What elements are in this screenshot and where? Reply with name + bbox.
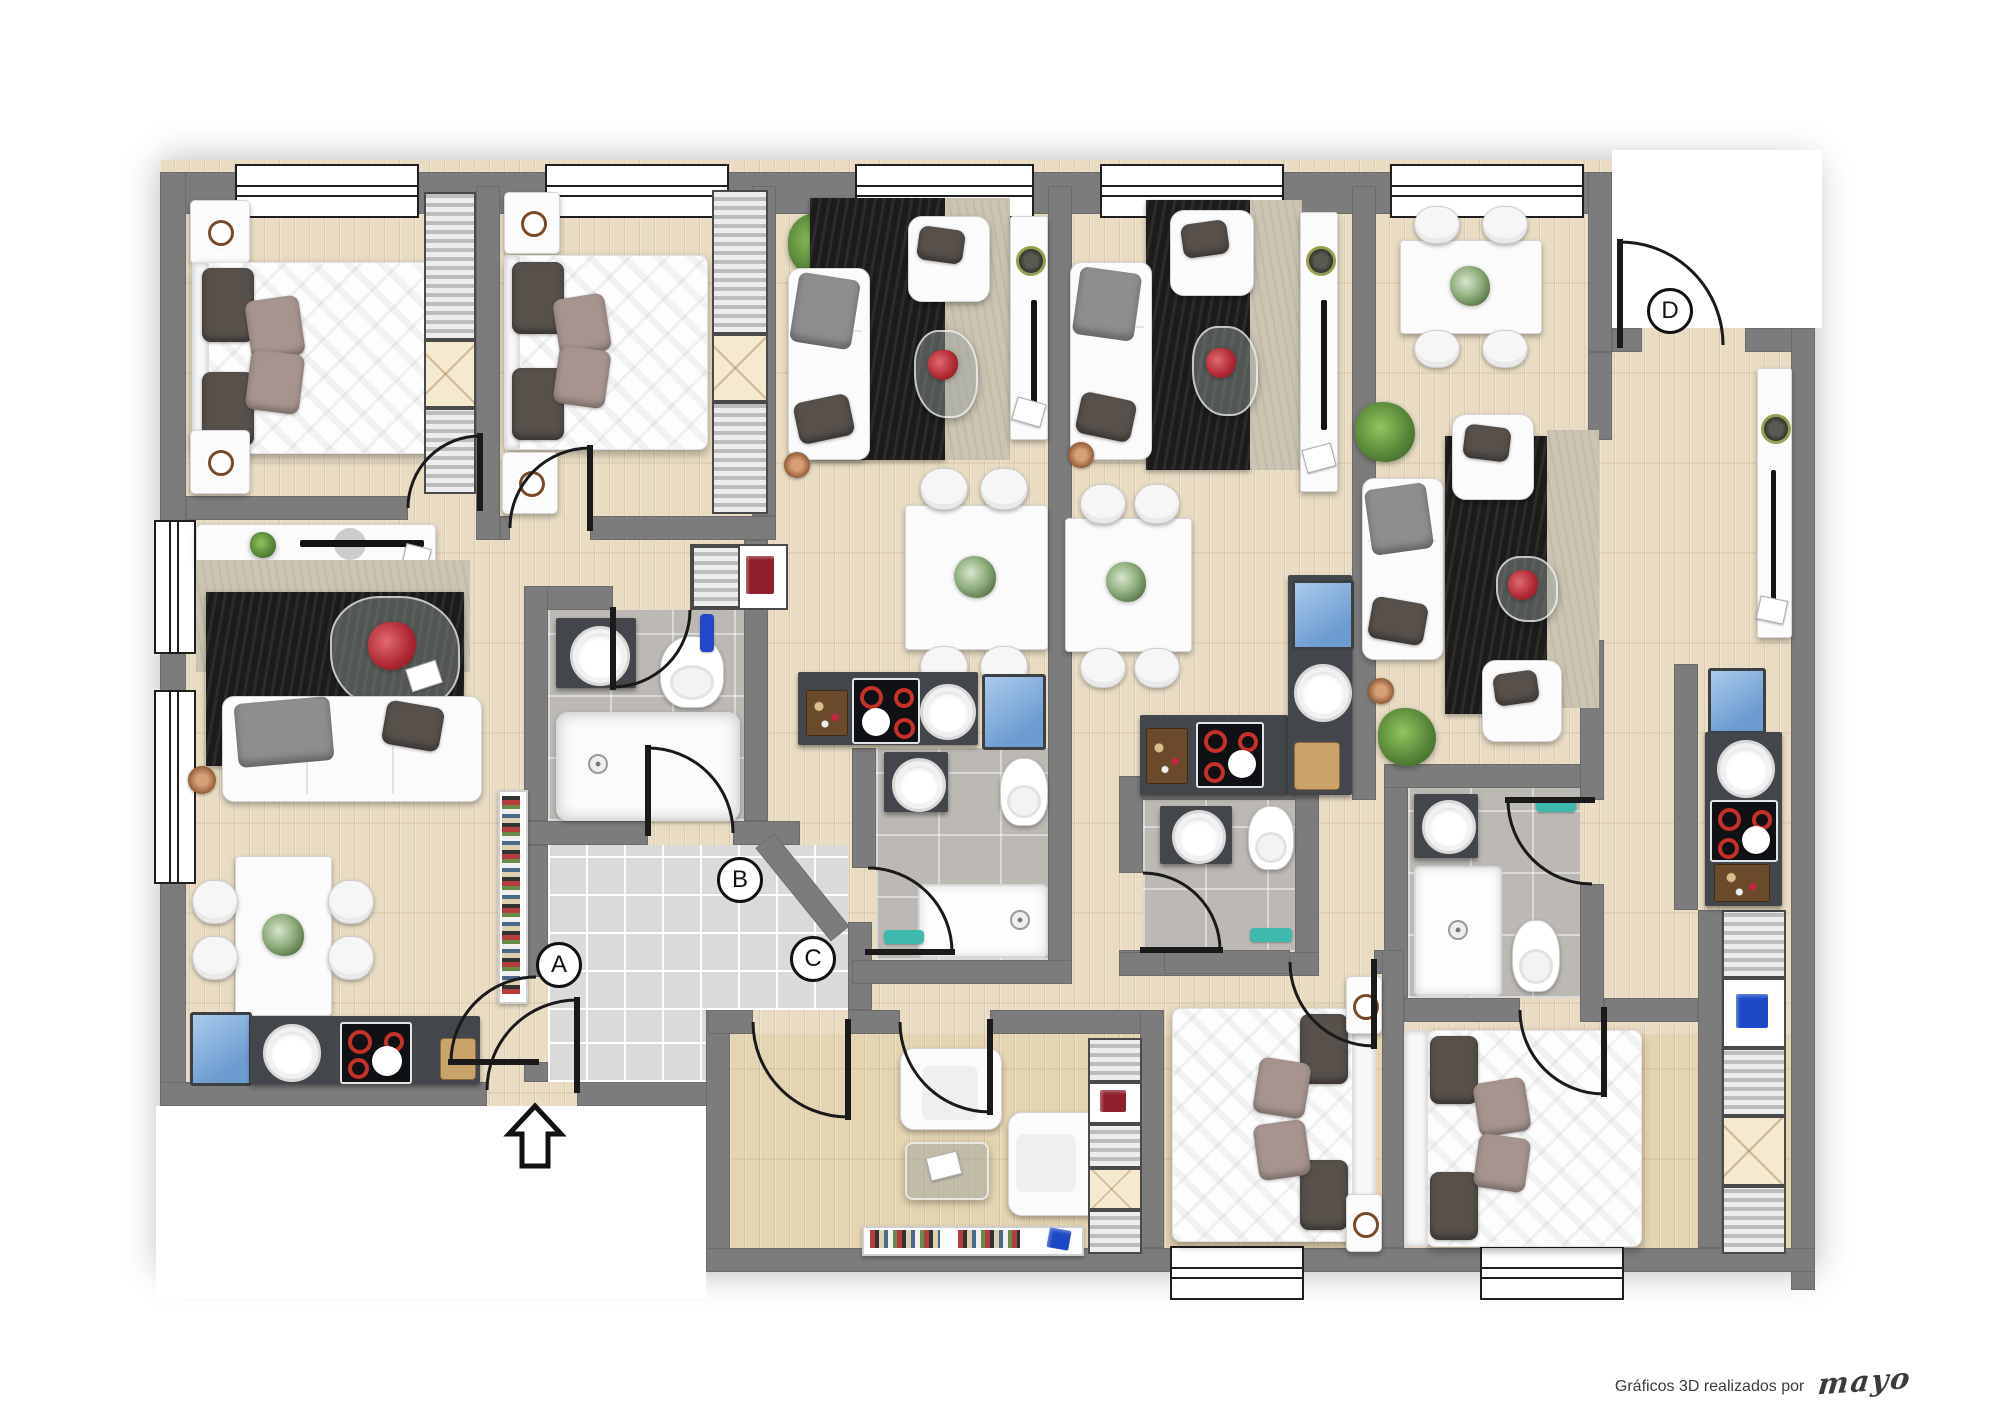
door-arc-bedroom-d1 xyxy=(1520,1010,1604,1094)
credit-text: Gráficos 3D realizados por xyxy=(1615,1378,1804,1395)
entrance-arrow-icon xyxy=(509,1106,561,1166)
credit-line: Gráficos 3D realizados pormayo xyxy=(1615,1364,1912,1398)
entrance-label-c-text: C xyxy=(804,945,821,973)
entrance-label-b: B xyxy=(717,857,763,903)
door-arc-unit-c xyxy=(753,1022,848,1117)
door-arc-bath-d xyxy=(1508,800,1592,884)
door-arc-bedroom-1 xyxy=(408,436,480,508)
door-arc-bath-c xyxy=(1143,873,1220,950)
entrance-label-c: C xyxy=(790,936,836,982)
entrance-label-d: D xyxy=(1647,288,1693,334)
door-arc-bedroom-c1 xyxy=(1290,962,1374,1046)
door-swing-layer xyxy=(0,0,2000,1414)
door-arc-bath-b xyxy=(868,868,952,952)
entrance-label-a-text: A xyxy=(551,951,567,979)
entrance-label-d-text: D xyxy=(1661,297,1678,325)
entrance-label-b-text: B xyxy=(732,866,748,894)
entrance-label-a: A xyxy=(536,942,582,988)
door-arc-building-entrance xyxy=(487,1000,577,1090)
credit-signature: mayo xyxy=(1817,1361,1914,1402)
door-arc-bedroom-2 xyxy=(510,448,590,528)
door-arc-bath-a xyxy=(613,610,690,687)
door-arc-unit-c-hall xyxy=(900,1022,990,1112)
door-arc-unit-b xyxy=(648,748,733,833)
floor-plan-canvas: A B C D Gráficos 3D realizados pormayo xyxy=(0,0,2000,1414)
